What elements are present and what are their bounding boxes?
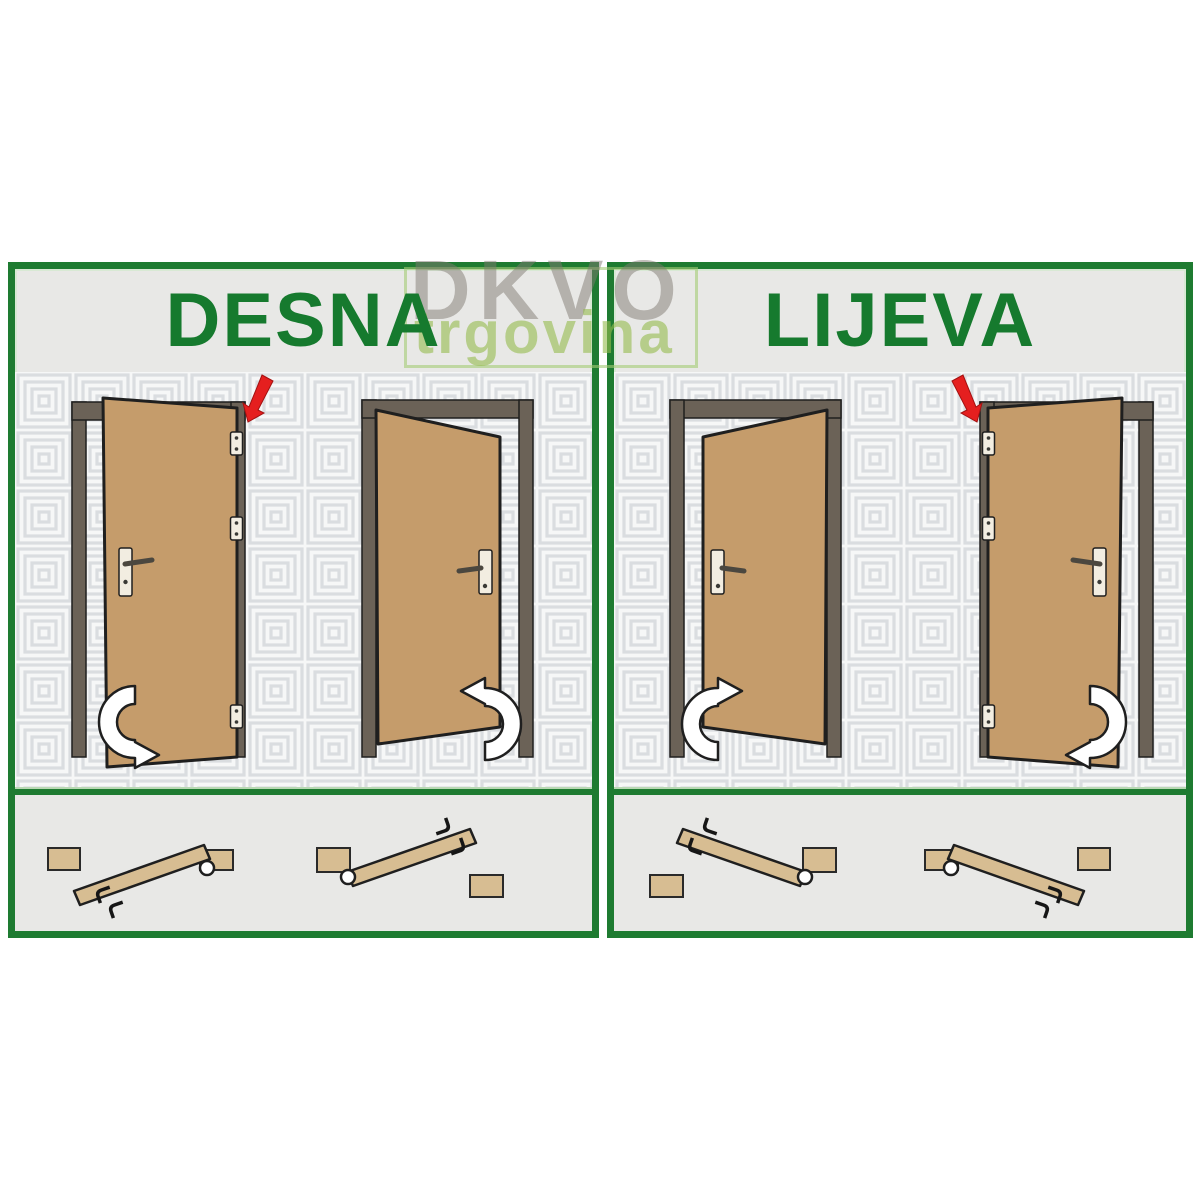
door-frame-left-jamb [72, 402, 86, 757]
plan-door-slab [74, 845, 210, 905]
wall-block [470, 875, 503, 897]
wall-scene-desna [15, 372, 592, 787]
hinge-pivot-icon [341, 870, 355, 884]
infographic-canvas: DESNA [0, 0, 1200, 1200]
plan-door-right-pivot [48, 845, 233, 918]
hinge-hook-icon [432, 818, 449, 834]
door-illustration-desna [15, 372, 592, 787]
plan-door-left-pivot-mirrored [925, 845, 1110, 918]
door-illustration-lijeva [614, 372, 1186, 787]
plan-view-desna [15, 795, 592, 931]
page-title-lijeva: LIJEVA [764, 277, 1036, 364]
wall-scene-lijeva [614, 372, 1186, 787]
page-title-desna: DESNA [165, 277, 441, 364]
hinge-hook-icon [109, 902, 126, 918]
panel-lijeva: LIJEVA [607, 262, 1193, 938]
wall-block [48, 848, 80, 870]
section-divider [614, 787, 1186, 795]
plan-door-right-pivot [317, 818, 503, 897]
hinge-icon [231, 705, 243, 728]
plan-illustration-desna [15, 795, 592, 931]
plan-view-lijeva [614, 795, 1186, 931]
wall-block [317, 848, 350, 872]
plan-illustration-lijeva [614, 795, 1186, 931]
hinge-pivot-icon [200, 861, 214, 875]
panel-desna: DESNA [8, 262, 599, 938]
door-frame-left-jamb [362, 400, 376, 757]
hinge-icon [231, 517, 243, 540]
panel-lijeva-header: LIJEVA [614, 269, 1186, 372]
hinge-icon [231, 432, 243, 455]
section-divider [15, 787, 592, 795]
plan-door-left-pivot-mirrored [650, 818, 836, 897]
plan-door-slab [347, 829, 476, 886]
panel-desna-header: DESNA [15, 269, 592, 372]
door-frame-right-jamb [519, 400, 533, 757]
